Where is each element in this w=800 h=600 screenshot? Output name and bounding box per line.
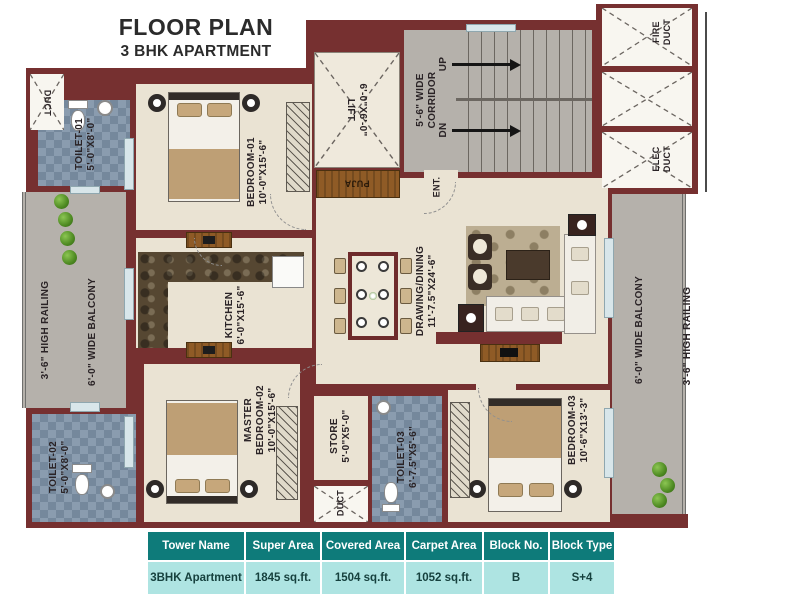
floor-plan-canvas: FLOOR PLAN 3 BHK APARTMENT xyxy=(0,0,800,600)
header-super-area: Super Area xyxy=(246,532,320,560)
pillow xyxy=(175,479,200,493)
plant xyxy=(652,462,667,477)
title-main: FLOOR PLAN xyxy=(112,14,280,41)
plate xyxy=(378,289,389,300)
plate xyxy=(356,261,367,272)
side-table-lamp xyxy=(568,214,596,236)
balcony-right xyxy=(612,194,686,514)
door-handle xyxy=(203,346,215,354)
armchair xyxy=(468,234,492,260)
nightstand xyxy=(240,480,258,498)
label-railing-left: 3'-6" HIGH RAILING xyxy=(40,281,52,380)
window-bedroom1 xyxy=(124,138,134,190)
label-toilet1: TOILET-015'-0"X8'-0" xyxy=(74,117,98,170)
window-toilet1 xyxy=(70,186,100,194)
armchair-seat xyxy=(473,239,487,254)
bed-headboard xyxy=(169,93,239,100)
dining-chair xyxy=(400,288,412,304)
fridge xyxy=(272,256,304,288)
table-centerpiece xyxy=(369,292,377,300)
plate xyxy=(356,289,367,300)
nightstand xyxy=(468,480,486,498)
nightstand xyxy=(146,480,164,498)
stair-landing-divider xyxy=(456,98,592,101)
window-kitchen xyxy=(124,268,134,320)
label-puja: PUJA xyxy=(344,178,369,189)
bed-master xyxy=(166,400,238,504)
plate xyxy=(378,261,389,272)
wall-balcony-right-bottom xyxy=(610,514,688,528)
bed-headboard xyxy=(167,496,237,503)
sofa-cushion xyxy=(521,307,539,321)
bed-blanket xyxy=(167,403,237,455)
cell-block-no: B xyxy=(484,562,548,594)
window-master xyxy=(124,416,134,468)
up-arrow-icon xyxy=(452,63,510,66)
dining-chair xyxy=(334,288,346,304)
plant xyxy=(660,478,675,493)
plot-boundary-line xyxy=(705,12,707,192)
down-arrow-icon xyxy=(452,129,510,132)
label-balcony-left: 6'-0" WIDE BALCONY xyxy=(87,278,99,386)
label-up: UP xyxy=(438,57,450,72)
cell-super-area: 1845 sq.ft. xyxy=(246,562,320,594)
tv-unit xyxy=(480,344,540,362)
fire-duct xyxy=(602,8,692,66)
coffee-table xyxy=(506,250,550,280)
label-toilet3: TOILET-036'-7.5"X5'-6" xyxy=(396,426,420,488)
sofa-cushion xyxy=(571,247,589,261)
label-corridor: 5'-6" WIDECORRIDOR xyxy=(415,72,439,129)
bed-bedroom1 xyxy=(168,92,240,202)
label-bedroom1: BEDROOM-0110'-0"X15'-6" xyxy=(246,137,270,207)
dining-chair xyxy=(334,258,346,274)
nightstand xyxy=(242,94,260,112)
cell-covered-area: 1504 sq.ft. xyxy=(322,562,404,594)
wardrobe-master xyxy=(276,406,298,500)
dining-chair xyxy=(334,318,346,334)
plate xyxy=(378,317,389,328)
label-balcony-right: 6'-0" WIDE BALCONY xyxy=(634,276,646,384)
label-fire-duct: FIREDUCT xyxy=(651,19,673,45)
label-duct-top-left: DUCT xyxy=(42,90,53,116)
tv-wall xyxy=(436,332,562,344)
label-duct-bottom: DUCT xyxy=(336,490,347,516)
tv-icon xyxy=(500,348,518,357)
plant xyxy=(652,493,667,508)
header-tower-name: Tower Name xyxy=(148,532,244,560)
spec-table-data-row: 3BHK Apartment 1845 sq.ft. 1504 sq.ft. 1… xyxy=(148,562,614,594)
sofa-cushion xyxy=(571,281,589,295)
cell-block-type: S+4 xyxy=(550,562,614,594)
window-drawing xyxy=(604,238,614,318)
title-sub: 3 BHK APARTMENT xyxy=(112,43,280,61)
cell-tower-name: 3BHK Apartment xyxy=(148,562,244,594)
label-bedroom3: BEDROOM-0310'-6"X13'-3" xyxy=(567,395,591,465)
stair-window xyxy=(466,24,516,32)
pillow xyxy=(207,103,232,117)
nightstand xyxy=(564,480,582,498)
duct-middle xyxy=(602,72,692,126)
plant xyxy=(60,231,75,246)
header-block-type: Block Type xyxy=(550,532,614,560)
label-railing-right: 3'-6" HIGH RAILING xyxy=(682,287,694,386)
spec-table-header-row: Tower Name Super Area Covered Area Carpe… xyxy=(148,532,614,560)
spec-table: Tower Name Super Area Covered Area Carpe… xyxy=(148,532,614,594)
sofa-cushion xyxy=(495,307,513,321)
wc-tank xyxy=(72,464,92,473)
plate xyxy=(356,317,367,328)
plant xyxy=(62,250,77,265)
wash-basin xyxy=(100,484,115,499)
nightstand xyxy=(148,94,166,112)
header-covered-area: Covered Area xyxy=(322,532,404,560)
staircase xyxy=(456,30,592,172)
wardrobe-bedroom1 xyxy=(286,102,310,192)
window-bedroom3 xyxy=(604,408,614,478)
balcony-left xyxy=(22,192,126,408)
kitchen-counter-left xyxy=(138,252,168,348)
sofa-vertical xyxy=(564,234,596,334)
wc-tank xyxy=(382,504,400,512)
pillow xyxy=(529,483,554,497)
wc-bowl xyxy=(75,474,89,495)
elec-duct xyxy=(602,132,692,188)
label-master-bedroom: MASTERBEDROOM-0210'-0"X15'-6" xyxy=(243,385,279,455)
plant xyxy=(54,194,69,209)
label-toilet2: TOILET-025'-0"X8'-0" xyxy=(48,440,72,493)
label-elec-duct: ELECDUCT xyxy=(651,146,673,172)
armchair xyxy=(468,264,492,290)
dining-chair xyxy=(400,318,412,334)
wardrobe-bedroom3 xyxy=(450,402,470,498)
armchair-seat xyxy=(473,269,487,284)
label-kitchen: KITCHEN6'-0"X15'-6" xyxy=(224,286,248,345)
pillow xyxy=(205,479,230,493)
bed-blanket xyxy=(169,149,239,199)
wash-basin xyxy=(97,100,113,116)
dining-chair xyxy=(400,258,412,274)
window-toilet2 xyxy=(70,402,100,412)
cell-carpet-area: 1052 sq.ft. xyxy=(406,562,482,594)
page-title: FLOOR PLAN 3 BHK APARTMENT xyxy=(112,14,280,61)
dining-table xyxy=(348,252,398,340)
label-store: STORE5'-0"X5'-0" xyxy=(329,409,353,462)
label-dn: DN xyxy=(438,122,450,137)
wash-basin xyxy=(376,400,391,415)
header-carpet-area: Carpet Area xyxy=(406,532,482,560)
label-lift: 6'-0"X6'-0"LIFT xyxy=(344,83,368,136)
pillow xyxy=(177,103,202,117)
wc-tank xyxy=(68,100,88,109)
header-block-no: Block No. xyxy=(484,532,548,560)
side-table-lamp xyxy=(458,304,484,332)
plant xyxy=(58,212,73,227)
label-drawing-dining: DRAWING/DINING11'-7.5"X24'-6" xyxy=(415,246,439,336)
label-entrance: ENT. xyxy=(432,177,443,198)
sofa-cushion xyxy=(547,307,565,321)
pillow xyxy=(498,483,523,497)
